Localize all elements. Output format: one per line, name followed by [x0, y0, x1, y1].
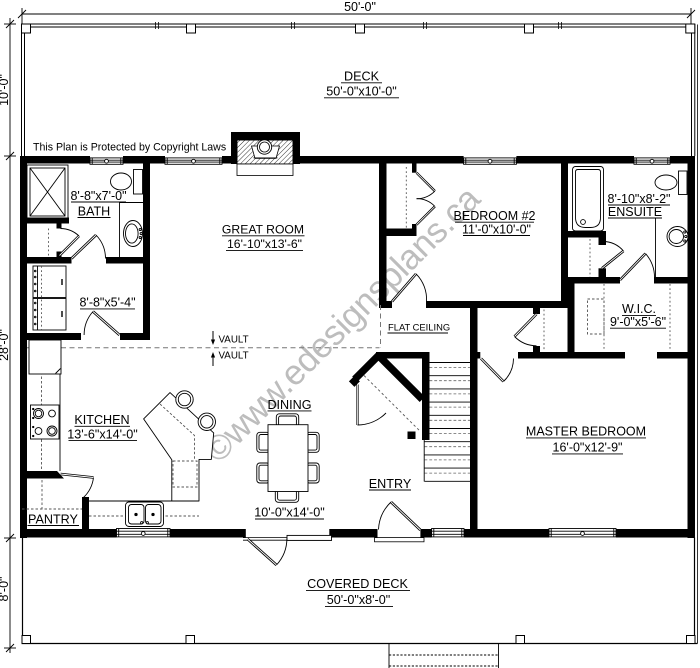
svg-text:8'-8"x5'-4": 8'-8"x5'-4" [79, 296, 135, 310]
svg-text:11'-0"x10'-0": 11'-0"x10'-0" [462, 222, 531, 236]
svg-text:BATH: BATH [78, 204, 110, 218]
svg-text:16'-10"x13'-6": 16'-10"x13'-6" [227, 237, 302, 251]
svg-text:DINING: DINING [267, 398, 311, 412]
svg-text:50'-0": 50'-0" [344, 0, 376, 14]
svg-text:MASTER BEDROOM: MASTER BEDROOM [526, 425, 646, 439]
svg-text:50'-0"x10'-0": 50'-0"x10'-0" [326, 85, 396, 99]
svg-text:28'-0": 28'-0" [0, 329, 11, 361]
svg-text:10'-0": 10'-0" [0, 74, 11, 106]
svg-text:8'-0": 8'-0" [0, 577, 11, 602]
svg-text:GREAT ROOM: GREAT ROOM [222, 223, 304, 237]
svg-text:This Plan is Protected by Copy: This Plan is Protected by Copyright Laws [33, 142, 226, 154]
svg-text:VAULT: VAULT [219, 351, 249, 362]
svg-text:PANTRY: PANTRY [28, 512, 79, 526]
svg-text:8'-8"x7'-0": 8'-8"x7'-0" [70, 189, 126, 203]
svg-text:10'-0"x14'-0": 10'-0"x14'-0" [254, 506, 324, 520]
svg-text:BEDROOM #2: BEDROOM #2 [454, 209, 536, 223]
svg-text:16'-0"x12'-9": 16'-0"x12'-9" [553, 441, 623, 455]
svg-text:13'-6"x14'-0": 13'-6"x14'-0" [67, 427, 137, 441]
svg-text:KITCHEN: KITCHEN [74, 413, 129, 427]
svg-text:9'-0"x5'-6": 9'-0"x5'-6" [610, 315, 666, 329]
svg-text:ENTRY: ENTRY [369, 477, 412, 491]
svg-text:COVERED DECK: COVERED DECK [307, 577, 408, 591]
svg-text:VAULT: VAULT [219, 335, 249, 346]
svg-text:8'-10"x8'-2": 8'-10"x8'-2" [608, 192, 671, 206]
svg-text:ENSUITE: ENSUITE [608, 205, 662, 219]
svg-text:FLAT CEILING: FLAT CEILING [388, 322, 450, 333]
svg-text:DECK: DECK [344, 70, 380, 84]
svg-text:50'-0"x8'-0": 50'-0"x8'-0" [327, 593, 390, 607]
